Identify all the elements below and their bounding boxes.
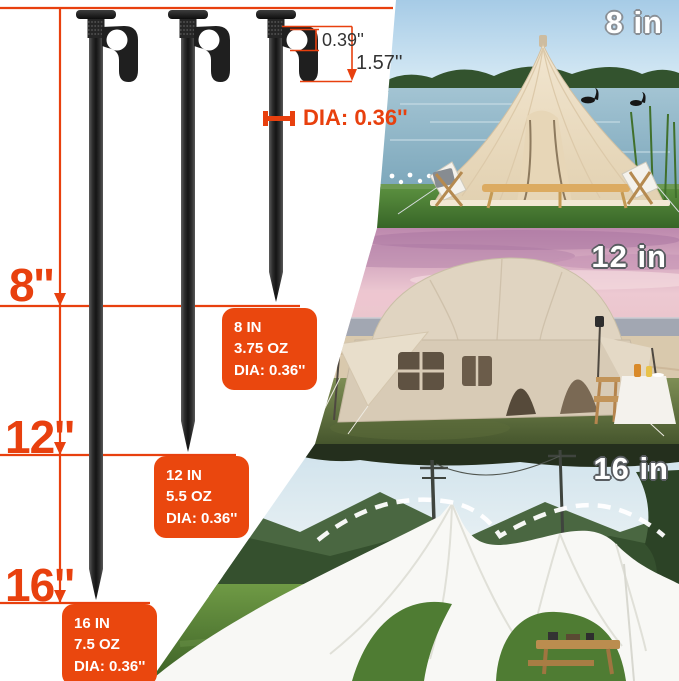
stake-8in xyxy=(256,10,318,302)
spec-weight: 7.5 OZ xyxy=(74,634,145,655)
tablecloth xyxy=(614,376,676,424)
spec-diameter: DIA: 0.36'' xyxy=(74,656,145,677)
spec-box-12in: 12 IN 5.5 OZ DIA: 0.36'' xyxy=(154,456,249,538)
hook-hole-diameter-label: 0.39'' xyxy=(322,31,364,49)
stake-12in xyxy=(168,10,230,452)
spec-box-16in: 16 IN 7.5 OZ DIA: 0.36'' xyxy=(62,604,157,681)
spec-weight: 3.75 OZ xyxy=(234,338,305,359)
spec-weight: 5.5 OZ xyxy=(166,486,237,507)
spec-size: 12 IN xyxy=(166,465,237,486)
left-measurement-8in: 8'' xyxy=(9,262,53,308)
spec-diameter: DIA: 0.36'' xyxy=(166,508,237,529)
shaft-diameter-row: DIA: 0.36'' xyxy=(263,107,408,129)
photo-caption-8in: 8 in xyxy=(606,7,663,38)
photo-caption-16in: 16 in xyxy=(593,453,669,484)
spec-size: 8 IN xyxy=(234,317,305,338)
tent-stake-infographic: 8 in xyxy=(0,0,679,681)
lantern xyxy=(595,316,604,327)
diameter-icon xyxy=(263,111,295,126)
spec-diameter: DIA: 0.36'' xyxy=(234,360,305,381)
spec-box-8in: 8 IN 3.75 OZ DIA: 0.36'' xyxy=(222,308,317,390)
left-measurement-16in: 16'' xyxy=(5,562,74,608)
spec-size: 16 IN xyxy=(74,613,145,634)
shaft-diameter-label: DIA: 0.36'' xyxy=(303,107,408,129)
photo-caption-12in: 12 in xyxy=(591,241,667,272)
left-measurement-12in: 12'' xyxy=(5,414,74,460)
hook-length-label: 1.57'' xyxy=(356,53,403,73)
